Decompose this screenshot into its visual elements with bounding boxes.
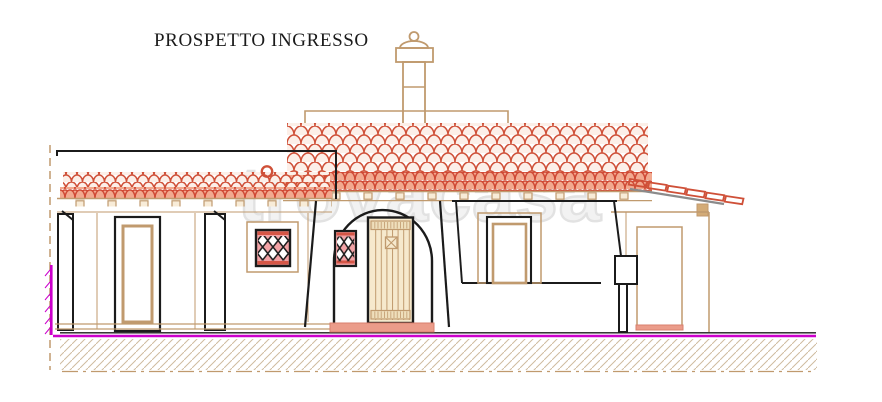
pergola <box>611 179 744 332</box>
porch-lattice-band-bottom <box>258 261 289 265</box>
door-slats <box>371 221 410 320</box>
porch-lattice-band-top <box>258 232 289 236</box>
door-band-top-hatch <box>372 222 409 229</box>
entrance-door <box>368 218 413 324</box>
entrance-lattice-grid <box>337 237 354 262</box>
chimney-cap <box>396 48 433 62</box>
ground-hatch <box>60 339 817 370</box>
entrance-right-wall <box>440 201 449 327</box>
pergola-post-head <box>697 204 708 216</box>
chimney-dome <box>400 41 428 48</box>
left-section-lines <box>45 145 51 370</box>
entrance-lattice-band-top <box>337 233 355 236</box>
main-roof <box>283 123 652 201</box>
ground <box>53 333 817 372</box>
porch-french-window <box>115 217 160 331</box>
right-wing-window <box>478 213 541 283</box>
main-roof-corbels <box>286 193 648 201</box>
porch-column-right <box>205 214 225 330</box>
elevation-drawing-page: trovacasa <box>0 0 882 402</box>
entrance-left-wall <box>305 201 316 327</box>
right-wing-left-edge <box>456 201 462 283</box>
porch-roof-fascia <box>60 187 332 198</box>
porch-corbels <box>58 200 332 207</box>
pergola-opening-sill <box>636 325 683 330</box>
door-band-bottom-hatch <box>372 312 409 319</box>
entrance <box>305 201 449 332</box>
porch <box>55 151 336 331</box>
porch-column-left <box>58 214 73 330</box>
main-roof-tiles <box>287 123 648 172</box>
porch-lattice-window <box>247 222 298 272</box>
porch-roof-tiles <box>63 172 330 187</box>
pergola-opening <box>637 227 682 327</box>
elevation-drawing <box>0 0 882 402</box>
right-wing <box>452 201 617 283</box>
entrance-lattice-window <box>335 231 356 266</box>
chimney-shaft <box>403 62 425 124</box>
chimney-finial <box>410 32 419 41</box>
porch-lattice-grid <box>258 236 289 261</box>
drawing-title: PROSPETTO INGRESSO <box>154 30 369 52</box>
entrance-step <box>330 323 434 332</box>
main-roof-fascia <box>283 172 652 191</box>
